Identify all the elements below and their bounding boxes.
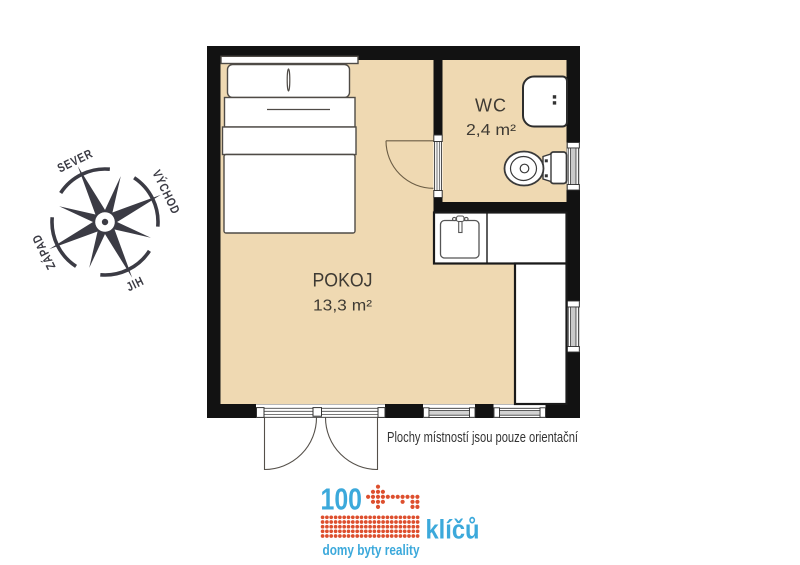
svg-text:WC: WC: [475, 96, 507, 116]
svg-text:2,4 m²: 2,4 m²: [466, 122, 516, 139]
svg-text:Plochy místností jsou pouze or: Plochy místností jsou pouze orientační: [387, 429, 579, 446]
svg-text:klíčů: klíčů: [426, 515, 480, 545]
svg-text:POKOJ: POKOJ: [313, 271, 373, 292]
svg-text:13,3 m²: 13,3 m²: [313, 298, 372, 315]
svg-text:domy byty reality: domy byty reality: [323, 543, 420, 559]
svg-text:100: 100: [321, 482, 363, 517]
